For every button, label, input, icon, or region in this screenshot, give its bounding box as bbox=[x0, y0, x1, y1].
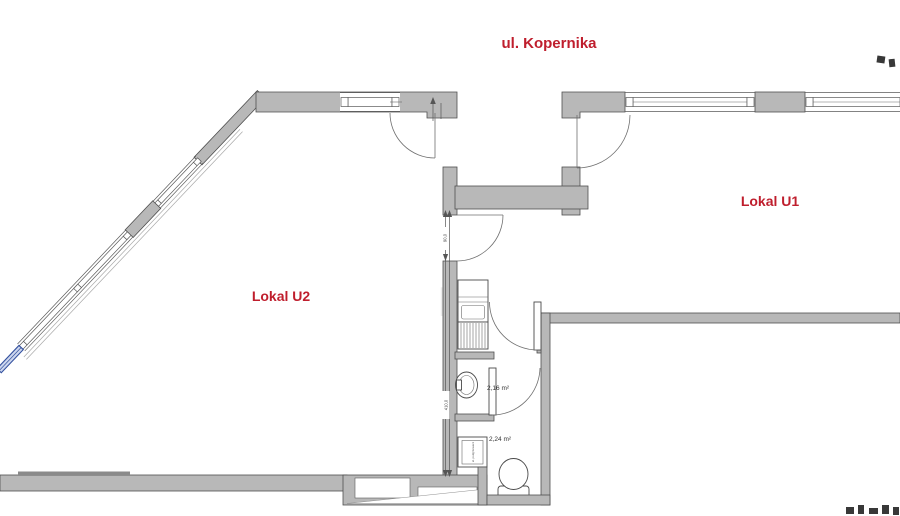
top-right-mark-1 bbox=[876, 55, 885, 63]
door-washzone-leaf bbox=[534, 302, 541, 350]
bottom-left-thin-wall bbox=[18, 472, 130, 476]
facade-window2-glazing bbox=[23, 236, 126, 345]
sink-unit-counter bbox=[458, 280, 488, 322]
water-heater-label: el. podgrzewacz bbox=[471, 441, 475, 462]
window2-mullion-a bbox=[626, 98, 633, 107]
rear-niche-1 bbox=[355, 478, 410, 498]
top-right-mark-2 bbox=[889, 59, 896, 68]
washbasin-tap bbox=[457, 380, 462, 390]
diagonal-facade-wall bbox=[0, 91, 270, 379]
bottom-right-mark-2 bbox=[858, 505, 864, 514]
door-u2-entrance-arc bbox=[390, 113, 435, 158]
top-right-wall-pier bbox=[755, 92, 805, 112]
facade-window2-outer bbox=[18, 230, 126, 344]
sink-unit-hatched-section bbox=[458, 322, 488, 349]
u1-bottom-wall bbox=[541, 313, 900, 323]
facade-window1-glazing bbox=[158, 162, 197, 203]
facade-sill-line-2 bbox=[26, 132, 242, 360]
sanitary-right-wall bbox=[541, 313, 550, 505]
window2-mullion-b bbox=[747, 98, 754, 107]
bottom-right-mark-1 bbox=[846, 507, 854, 514]
facade-sill-line bbox=[24, 129, 240, 357]
door-u1-entrance-arc bbox=[577, 115, 630, 168]
washroom: 2,16 m² bbox=[456, 372, 510, 398]
bottom-right-mark-4 bbox=[882, 505, 889, 514]
wc-top-stub-wall bbox=[455, 414, 494, 421]
corridor-left-wall bbox=[443, 261, 457, 477]
bottom-right-mark-3 bbox=[869, 508, 878, 514]
dim-door-label: 90,0 bbox=[443, 233, 448, 242]
bottom-left-wall bbox=[0, 475, 347, 491]
floor-plan-drawing: E ul. Kopernika bbox=[0, 0, 900, 516]
wc-area-label: 2,24 m² bbox=[489, 436, 512, 443]
bottom-right-mark-5 bbox=[893, 507, 899, 515]
facade-pier-corner bbox=[194, 91, 265, 165]
top-right-pier bbox=[562, 92, 625, 118]
edge-artifacts bbox=[846, 55, 899, 515]
vestibule-bottom-wall bbox=[455, 186, 588, 209]
facade-blue-glazed-segment bbox=[0, 345, 23, 372]
wc-left-wall bbox=[478, 467, 487, 505]
street-name-label: ul. Kopernika bbox=[501, 35, 597, 52]
window1-glazing bbox=[348, 98, 392, 107]
wc-bottom-wall bbox=[487, 495, 550, 505]
sink-unit bbox=[458, 280, 488, 349]
facade-window1-inner bbox=[159, 163, 203, 209]
facade-window1-outer bbox=[152, 156, 196, 202]
unit-u2-label: Lokal U2 bbox=[252, 288, 311, 304]
window1-mullion-a bbox=[341, 98, 348, 107]
dim-corridor-label: 410,0 bbox=[444, 399, 449, 410]
door-corridor-arc bbox=[457, 215, 503, 261]
washroom-top-stub-wall bbox=[455, 352, 494, 359]
window3-mullion bbox=[806, 98, 813, 107]
floor-plan-page: E ul. Kopernika bbox=[0, 0, 900, 516]
unit-u1-label: Lokal U1 bbox=[741, 193, 800, 209]
washroom-area-label: 2,16 m² bbox=[487, 385, 510, 392]
door-washzone-arc bbox=[490, 302, 538, 350]
toilet-bowl bbox=[499, 459, 528, 490]
dim-head-door-bottom bbox=[443, 254, 448, 261]
facade-window2-inner bbox=[25, 237, 133, 351]
